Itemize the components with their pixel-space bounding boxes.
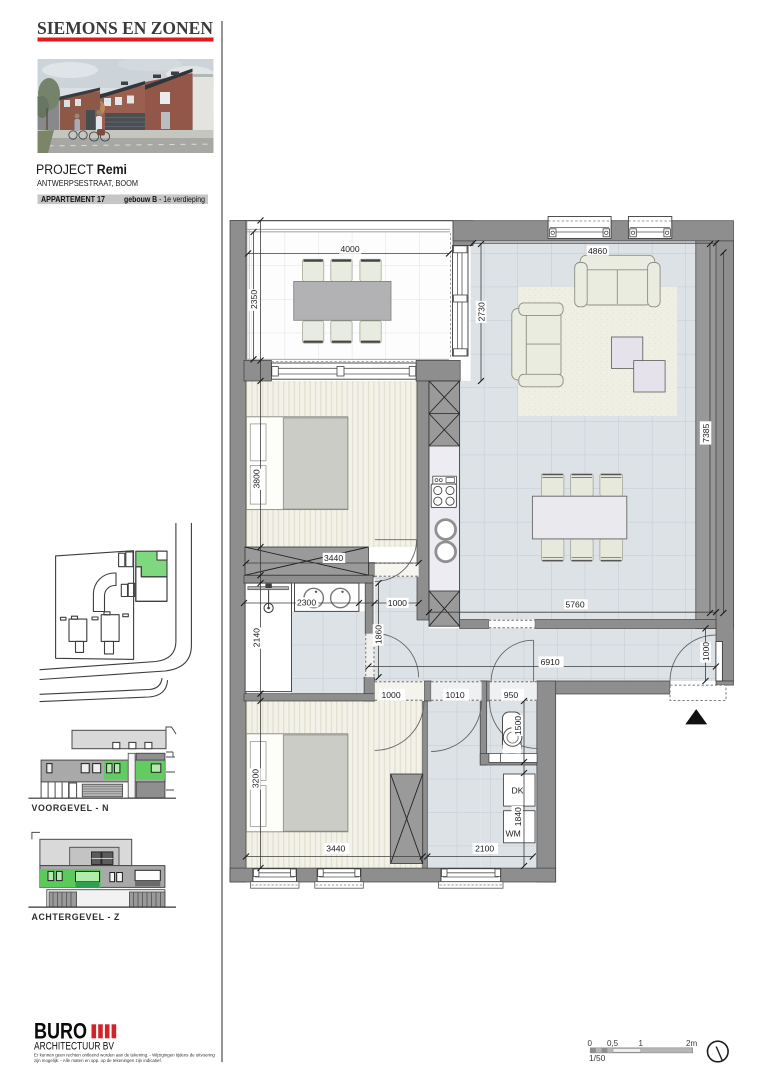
svg-text:1500: 1500 xyxy=(513,716,523,735)
svg-text:3800: 3800 xyxy=(251,469,261,488)
svg-text:950: 950 xyxy=(504,690,519,700)
svg-text:DK: DK xyxy=(512,786,524,796)
svg-text:3440: 3440 xyxy=(326,844,345,854)
svg-text:2350: 2350 xyxy=(249,290,259,309)
svg-text:7385: 7385 xyxy=(701,423,711,442)
svg-text:1000: 1000 xyxy=(382,690,401,700)
svg-text:1000: 1000 xyxy=(388,598,407,608)
svg-text:VOORGEVEL - N: VOORGEVEL - N xyxy=(32,803,110,813)
svg-text:2m: 2m xyxy=(686,1039,697,1048)
svg-text:gebouw B - 1e verdieping: gebouw B - 1e verdieping xyxy=(124,195,205,204)
svg-text:1860: 1860 xyxy=(374,625,384,644)
svg-text:APPARTEMENT 17: APPARTEMENT 17 xyxy=(41,195,105,204)
svg-text:3440: 3440 xyxy=(324,553,343,563)
svg-text:0,5: 0,5 xyxy=(607,1039,619,1048)
svg-text:4860: 4860 xyxy=(588,246,607,256)
svg-text:1010: 1010 xyxy=(446,690,465,700)
svg-text:2140: 2140 xyxy=(251,628,261,647)
svg-text:2300: 2300 xyxy=(297,598,316,608)
svg-text:1000: 1000 xyxy=(701,642,711,661)
svg-text:2100: 2100 xyxy=(475,844,494,854)
svg-text:WM: WM xyxy=(506,829,521,839)
svg-text:1840: 1840 xyxy=(513,807,523,826)
svg-text:4000: 4000 xyxy=(341,244,360,254)
svg-text:SIEMONS EN ZONEN: SIEMONS EN ZONEN xyxy=(37,18,213,38)
svg-text:5760: 5760 xyxy=(566,600,585,610)
svg-text:ARCHITECTUUR BV: ARCHITECTUUR BV xyxy=(34,1040,114,1052)
svg-text:0: 0 xyxy=(588,1039,593,1048)
svg-text:6910: 6910 xyxy=(541,657,560,667)
svg-text:ACHTERGEVEL - Z: ACHTERGEVEL - Z xyxy=(32,912,121,922)
svg-text:1/50: 1/50 xyxy=(589,1053,606,1063)
svg-text:ANTWERPSESTRAAT, BOOM: ANTWERPSESTRAAT, BOOM xyxy=(37,179,138,188)
svg-text:1: 1 xyxy=(639,1039,644,1048)
svg-text:Er kunnen geen rechten ontleen: Er kunnen geen rechten ontleend worden a… xyxy=(34,1053,215,1058)
svg-text:3200: 3200 xyxy=(251,769,261,788)
svg-text:2730: 2730 xyxy=(476,302,486,321)
svg-text:zijn mogelijk. - Alle maten en: zijn mogelijk. - Alle maten en opp. op d… xyxy=(34,1058,162,1063)
svg-text:PROJECT Remi: PROJECT Remi xyxy=(36,162,127,178)
